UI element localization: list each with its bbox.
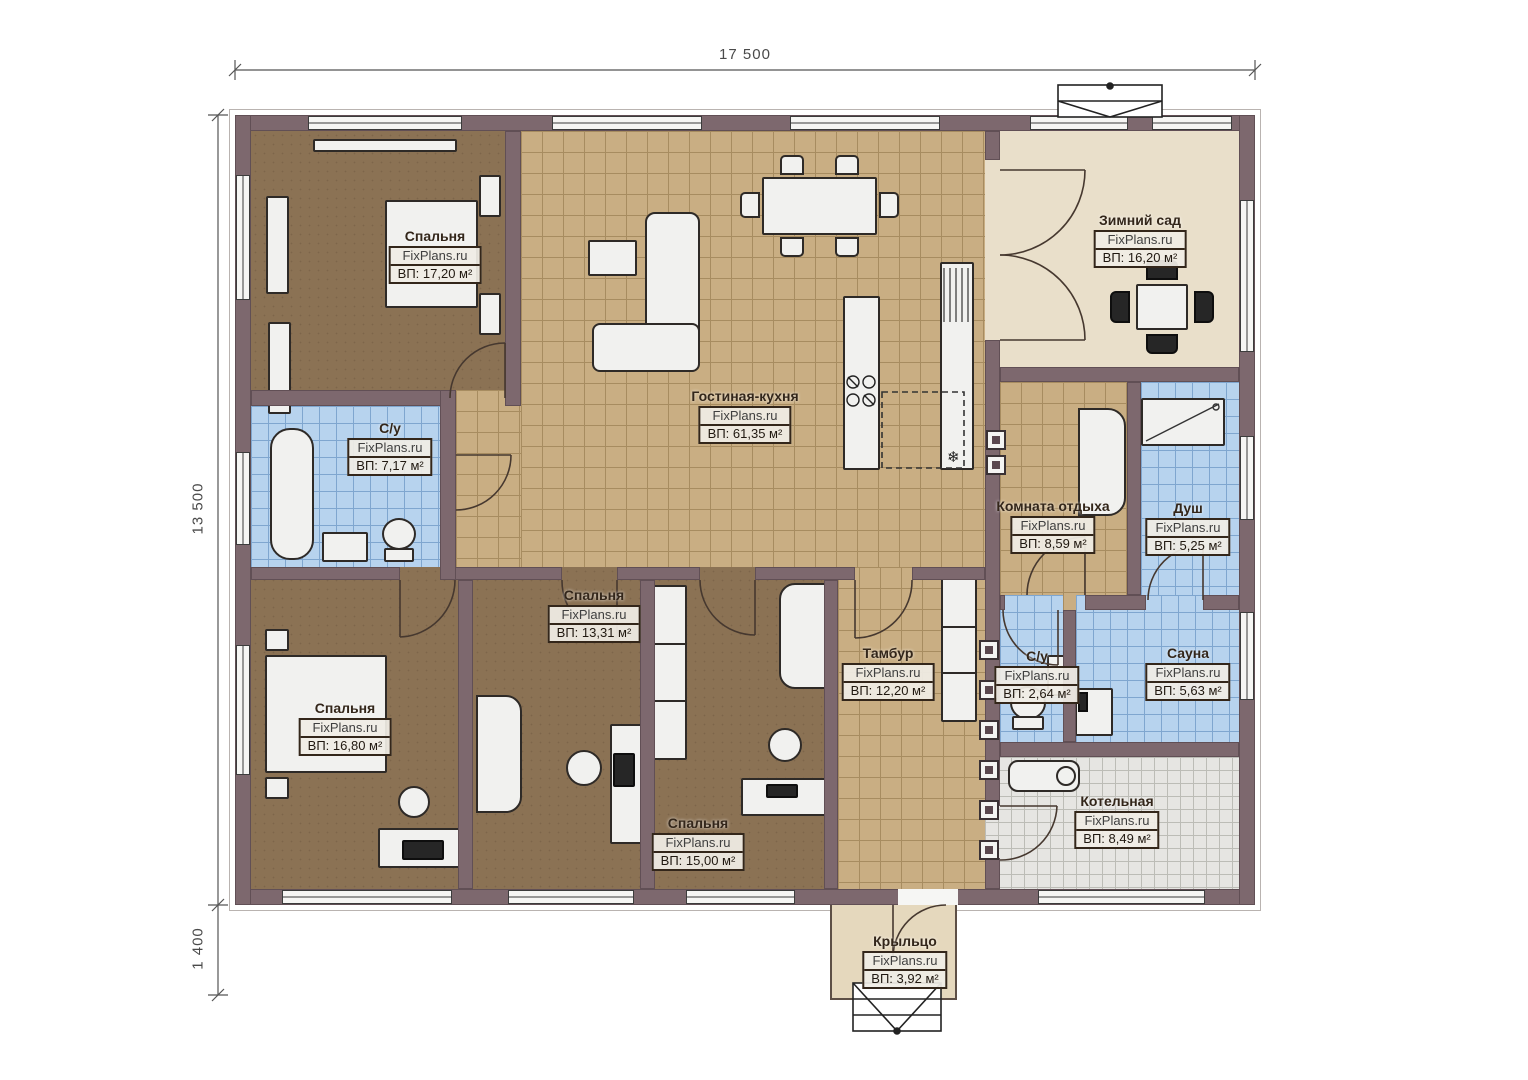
bathtub [270, 428, 314, 560]
sink [322, 532, 368, 562]
wall-interior [458, 580, 473, 889]
kitchen-island [843, 296, 880, 470]
wall-corridor [617, 567, 700, 580]
wall-interior [985, 858, 1000, 889]
shower-tray [1141, 398, 1225, 446]
room-name: Душ [1145, 500, 1230, 516]
monitor [766, 784, 798, 798]
watermark: FixPlans.ru [1147, 520, 1228, 538]
window [1038, 890, 1205, 904]
room-label-bedroom-4: Спальня FixPlans.ru ВП: 15,00 м² [652, 815, 745, 871]
room-area: ВП: 12,20 м² [844, 683, 933, 699]
window [1240, 612, 1254, 700]
floor-plan-canvas: ❄ [0, 0, 1528, 1080]
wall-interior [1203, 595, 1239, 610]
dining-chair [780, 155, 804, 175]
watermark: FixPlans.ru [701, 408, 790, 426]
room-name: Крыльцо [862, 933, 947, 949]
room-label-bathroom-main: С/у FixPlans.ru ВП: 7,17 м² [347, 420, 432, 476]
room-label-bedroom-2: Спальня FixPlans.ru ВП: 16,80 м² [299, 700, 392, 756]
garden-chair [1194, 291, 1214, 323]
sofa [476, 695, 522, 813]
wall-niche [986, 430, 1006, 450]
window [282, 890, 452, 904]
window [308, 116, 462, 130]
kitchen-tall-unit [940, 262, 974, 470]
room-name: Зимний сад [1094, 212, 1187, 228]
room-name: Спальня [389, 228, 482, 244]
toilet-base [1012, 716, 1044, 730]
entrance-door-opening [898, 889, 958, 905]
wall-corridor [755, 567, 855, 580]
dimension-porch: 1 400 [190, 894, 207, 1004]
room-label-boiler-room: Котельная FixPlans.ru ВП: 8,49 м² [1074, 793, 1159, 849]
window [552, 116, 702, 130]
desk-chair [398, 786, 430, 818]
wall-niche [986, 455, 1006, 475]
wall-interior [1085, 595, 1146, 610]
room-name: С/у [994, 648, 1079, 664]
room-name: Спальня [652, 815, 745, 831]
monitor [613, 753, 635, 787]
dimension-width: 17 500 [690, 46, 800, 63]
chimney-block [979, 720, 999, 740]
chimney-block [979, 840, 999, 860]
room-name: Комната отдыха [996, 498, 1109, 514]
wall-interior [1000, 367, 1239, 382]
dining-chair [835, 237, 859, 257]
plant-pot [768, 728, 802, 762]
sofa [779, 583, 827, 689]
sofa-horizontal [592, 323, 700, 372]
dining-chair [879, 192, 899, 218]
room-name: Спальня [548, 587, 641, 603]
watermark: FixPlans.ru [301, 720, 390, 738]
window [236, 452, 250, 545]
room-area: ВП: 8,59 м² [1012, 536, 1093, 552]
wardrobe-side [266, 196, 289, 294]
nightstand [479, 175, 501, 217]
room-area: ВП: 3,92 м² [864, 971, 945, 987]
room-label-shower: Душ FixPlans.ru ВП: 5,25 м² [1145, 500, 1230, 556]
window [790, 116, 940, 130]
window [236, 175, 250, 300]
wardrobe-top [313, 139, 457, 152]
room-area: ВП: 7,17 м² [349, 458, 430, 474]
window [1240, 200, 1254, 352]
wall-interior [251, 390, 450, 406]
room-area: ВП: 15,00 м² [654, 853, 743, 869]
watermark: FixPlans.ru [550, 607, 639, 625]
dimension-height: 13 500 [190, 454, 207, 564]
hall-wardrobe [941, 578, 977, 722]
watermark: FixPlans.ru [864, 953, 945, 971]
dining-chair [835, 155, 859, 175]
watermark: FixPlans.ru [996, 668, 1077, 686]
coffee-table [588, 240, 637, 276]
window [236, 645, 250, 775]
window [508, 890, 634, 904]
watermark: FixPlans.ru [844, 665, 933, 683]
room-label-bedroom-3: Спальня FixPlans.ru ВП: 13,31 м² [548, 587, 641, 643]
room-name: Тамбур [842, 645, 935, 661]
room-label-rest-room: Комната отдыха FixPlans.ru ВП: 8,59 м² [996, 498, 1109, 554]
room-area: ВП: 5,25 м² [1147, 538, 1228, 554]
nightstand [479, 293, 501, 335]
watermark: FixPlans.ru [349, 440, 430, 458]
wall-corridor [251, 567, 400, 580]
room-name: Котельная [1074, 793, 1159, 809]
wall-interior [1000, 742, 1239, 757]
room-area: ВП: 2,64 м² [996, 686, 1077, 702]
wall-corridor [912, 567, 985, 580]
room-name: Гостиная-кухня [691, 388, 798, 404]
watermark: FixPlans.ru [1076, 813, 1157, 831]
wall-interior [505, 131, 521, 406]
wardrobe [652, 585, 687, 760]
floor-living-corridor [456, 390, 521, 567]
wall-interior [1000, 595, 1005, 610]
room-label-wc-small: С/у FixPlans.ru ВП: 2,64 м² [994, 648, 1079, 704]
dining-chair [780, 237, 804, 257]
room-area: ВП: 8,49 м² [1076, 831, 1157, 847]
dining-table [762, 177, 877, 235]
room-name: С/у [347, 420, 432, 436]
room-area: ВП: 5,63 м² [1147, 683, 1228, 699]
room-name: Сауна [1145, 645, 1230, 661]
freezer-icon: ❄ [947, 448, 960, 466]
wall-interior [1127, 382, 1141, 595]
room-area: ВП: 61,35 м² [701, 426, 790, 442]
desk-chair [566, 750, 602, 786]
room-area: ВП: 16,20 м² [1096, 250, 1185, 266]
nightstand [265, 777, 289, 799]
wall-corridor [455, 567, 562, 580]
toilet [382, 518, 416, 550]
window [1152, 116, 1232, 130]
room-label-vestibule: Тамбур FixPlans.ru ВП: 12,20 м² [842, 645, 935, 701]
chimney-block [979, 800, 999, 820]
watermark: FixPlans.ru [1096, 232, 1185, 250]
toilet-base [384, 548, 414, 562]
window [1240, 436, 1254, 520]
wall-interior [985, 131, 1000, 160]
room-area: ВП: 13,31 м² [550, 625, 639, 641]
window [686, 890, 795, 904]
boiler-dial [1056, 766, 1076, 786]
room-label-winter-garden: Зимний сад FixPlans.ru ВП: 16,20 м² [1094, 212, 1187, 268]
garden-chair [1146, 334, 1178, 354]
garden-table [1136, 284, 1188, 330]
room-label-living-kitchen: Гостиная-кухня FixPlans.ru ВП: 61,35 м² [691, 388, 798, 444]
garden-chair [1110, 291, 1130, 323]
watermark: FixPlans.ru [1147, 665, 1228, 683]
room-area: ВП: 17,20 м² [391, 266, 480, 282]
printer [402, 840, 444, 860]
wall-interior [440, 390, 456, 580]
room-label-bedroom-master: Спальня FixPlans.ru ВП: 17,20 м² [389, 228, 482, 284]
nightstand [265, 629, 289, 651]
wall-interior [824, 580, 838, 889]
watermark: FixPlans.ru [391, 248, 480, 266]
room-name: Спальня [299, 700, 392, 716]
room-label-sauna: Сауна FixPlans.ru ВП: 5,63 м² [1145, 645, 1230, 701]
room-label-porch: Крыльцо FixPlans.ru ВП: 3,92 м² [862, 933, 947, 989]
watermark: FixPlans.ru [654, 835, 743, 853]
watermark: FixPlans.ru [1012, 518, 1093, 536]
window [1030, 116, 1128, 130]
dining-chair [740, 192, 760, 218]
chimney-block [979, 760, 999, 780]
room-area: ВП: 16,80 м² [301, 738, 390, 754]
